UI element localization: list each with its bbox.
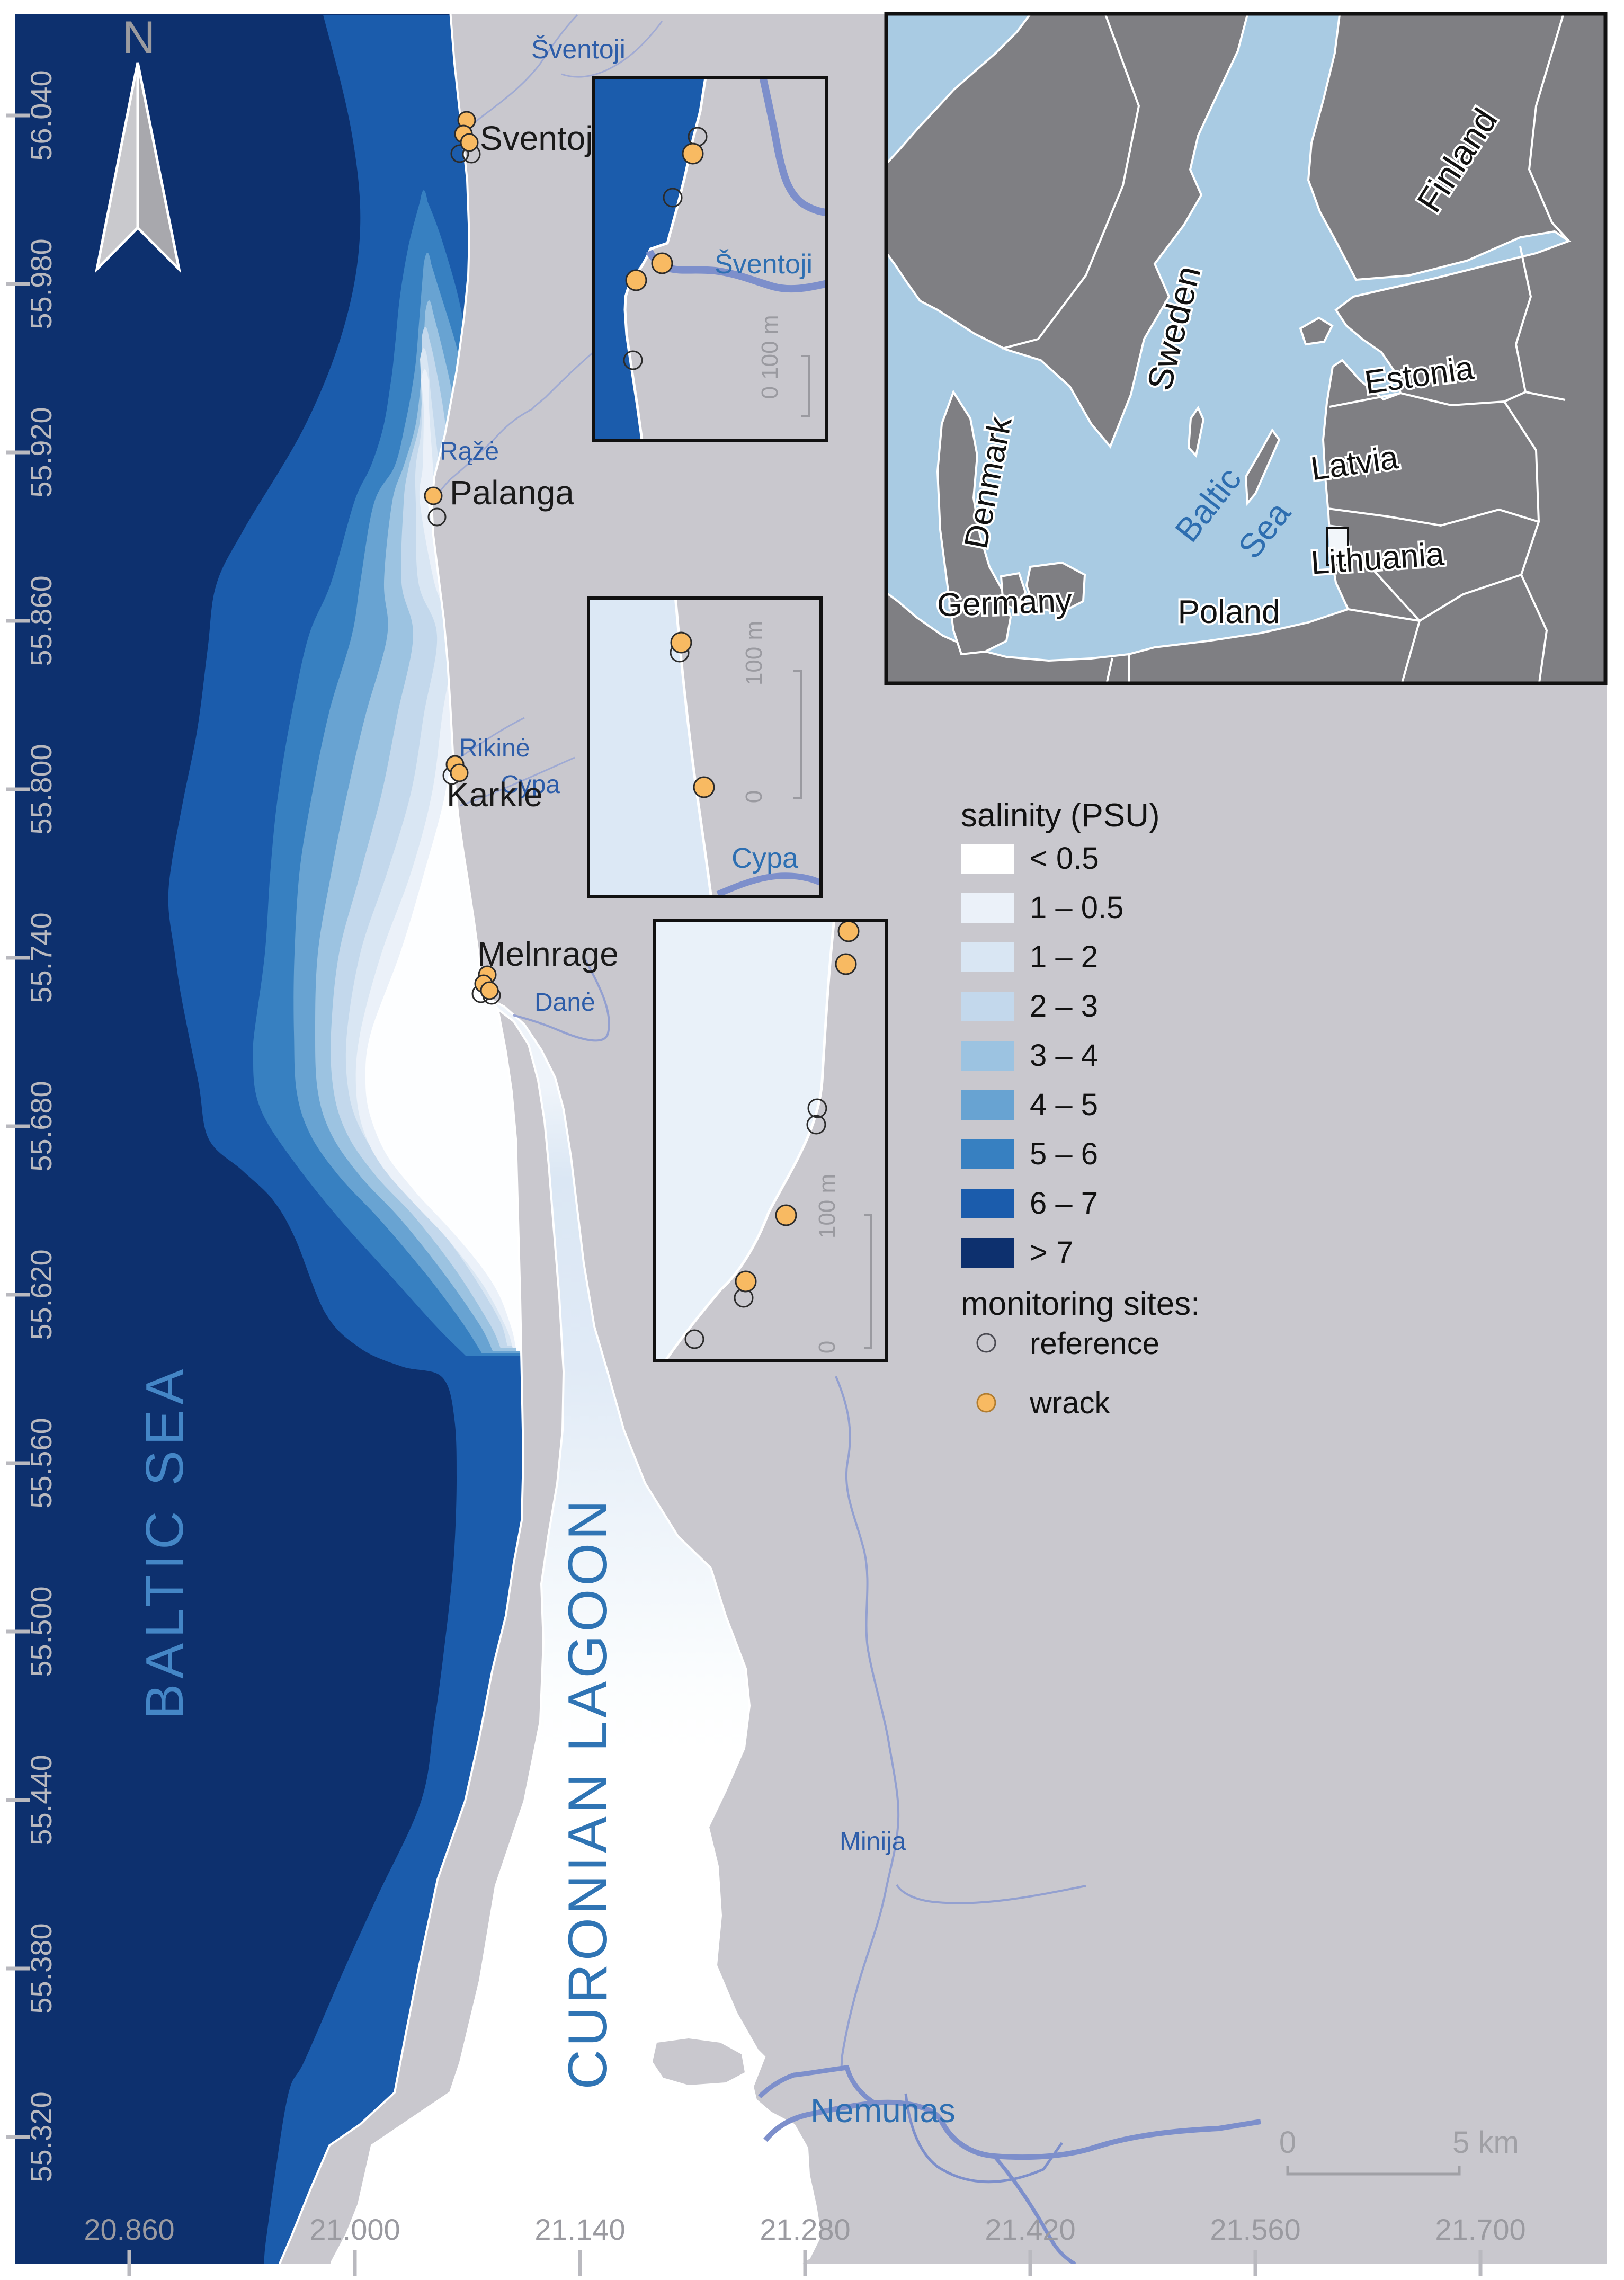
svg-text:55.740: 55.740 (24, 912, 58, 1003)
svg-text:< 0.5: < 0.5 (1030, 841, 1099, 876)
svg-text:5 – 6: 5 – 6 (1030, 1137, 1098, 1171)
svg-text:21.280: 21.280 (760, 2213, 850, 2246)
svg-text:0: 0 (1279, 2125, 1296, 2160)
svg-text:Rikinė: Rikinė (459, 734, 530, 762)
svg-text:100 m: 100 m (814, 1174, 840, 1239)
svg-text:Šventoji: Šventoji (531, 34, 626, 64)
svg-text:Melnrage: Melnrage (477, 935, 619, 973)
svg-text:21.560: 21.560 (1210, 2213, 1300, 2246)
svg-text:monitoring sites:: monitoring sites: (961, 1286, 1200, 1322)
svg-text:Germany: Germany (936, 583, 1073, 624)
svg-text:1 – 2: 1 – 2 (1030, 940, 1098, 974)
svg-text:Danė: Danė (534, 988, 595, 1017)
svg-text:Palanga: Palanga (450, 474, 574, 512)
svg-text:55.440: 55.440 (24, 1754, 58, 1845)
svg-text:21.000: 21.000 (309, 2213, 400, 2246)
svg-text:Nemunas: Nemunas (810, 2091, 956, 2130)
svg-text:55.920: 55.920 (24, 407, 58, 497)
svg-text:salinity (PSU): salinity (PSU) (961, 797, 1160, 834)
svg-text:6 – 7: 6 – 7 (1030, 1186, 1098, 1221)
svg-text:21.420: 21.420 (985, 2213, 1075, 2246)
svg-text:2 – 3: 2 – 3 (1030, 989, 1098, 1023)
svg-text:0: 0 (814, 1341, 840, 1353)
svg-text:55.620: 55.620 (24, 1249, 58, 1340)
svg-text:55.800: 55.800 (24, 744, 58, 834)
svg-text:N: N (122, 12, 155, 63)
svg-text:1 – 0.5: 1 – 0.5 (1030, 890, 1123, 925)
svg-text:Poland: Poland (1177, 594, 1280, 630)
svg-text:reference: reference (1030, 1326, 1159, 1361)
svg-text:0: 0 (741, 790, 767, 803)
svg-text:Rąžė: Rąžė (440, 438, 499, 466)
svg-text:Šventoji: Šventoji (715, 249, 813, 280)
svg-text:100 m: 100 m (741, 621, 767, 685)
svg-text:Minija: Minija (840, 1828, 906, 1856)
svg-text:wrack: wrack (1029, 1386, 1110, 1420)
svg-text:0 100 m: 0 100 m (757, 315, 783, 399)
svg-text:55.560: 55.560 (24, 1418, 58, 1508)
svg-text:Cypa: Cypa (731, 842, 799, 874)
svg-text:3 – 4: 3 – 4 (1030, 1038, 1098, 1073)
svg-text:BALTIC SEA: BALTIC SEA (135, 1364, 194, 1720)
svg-text:55.680: 55.680 (24, 1081, 58, 1171)
svg-text:4 – 5: 4 – 5 (1030, 1088, 1098, 1122)
svg-text:55.980: 55.980 (24, 238, 58, 329)
svg-text:21.140: 21.140 (534, 2213, 625, 2246)
svg-text:56.040: 56.040 (24, 70, 58, 161)
svg-text:> 7: > 7 (1030, 1235, 1073, 1270)
svg-text:5 km: 5 km (1452, 2125, 1519, 2160)
svg-text:Sventoji: Sventoji (480, 119, 601, 157)
svg-text:20.860: 20.860 (84, 2213, 174, 2246)
svg-text:21.700: 21.700 (1435, 2213, 1525, 2246)
svg-text:55.500: 55.500 (24, 1586, 58, 1677)
svg-text:CURONIAN LAGOON: CURONIAN LAGOON (557, 1497, 619, 2090)
svg-text:55.320: 55.320 (24, 2091, 58, 2182)
svg-text:55.380: 55.380 (24, 1923, 58, 2014)
svg-text:55.860: 55.860 (24, 575, 58, 666)
